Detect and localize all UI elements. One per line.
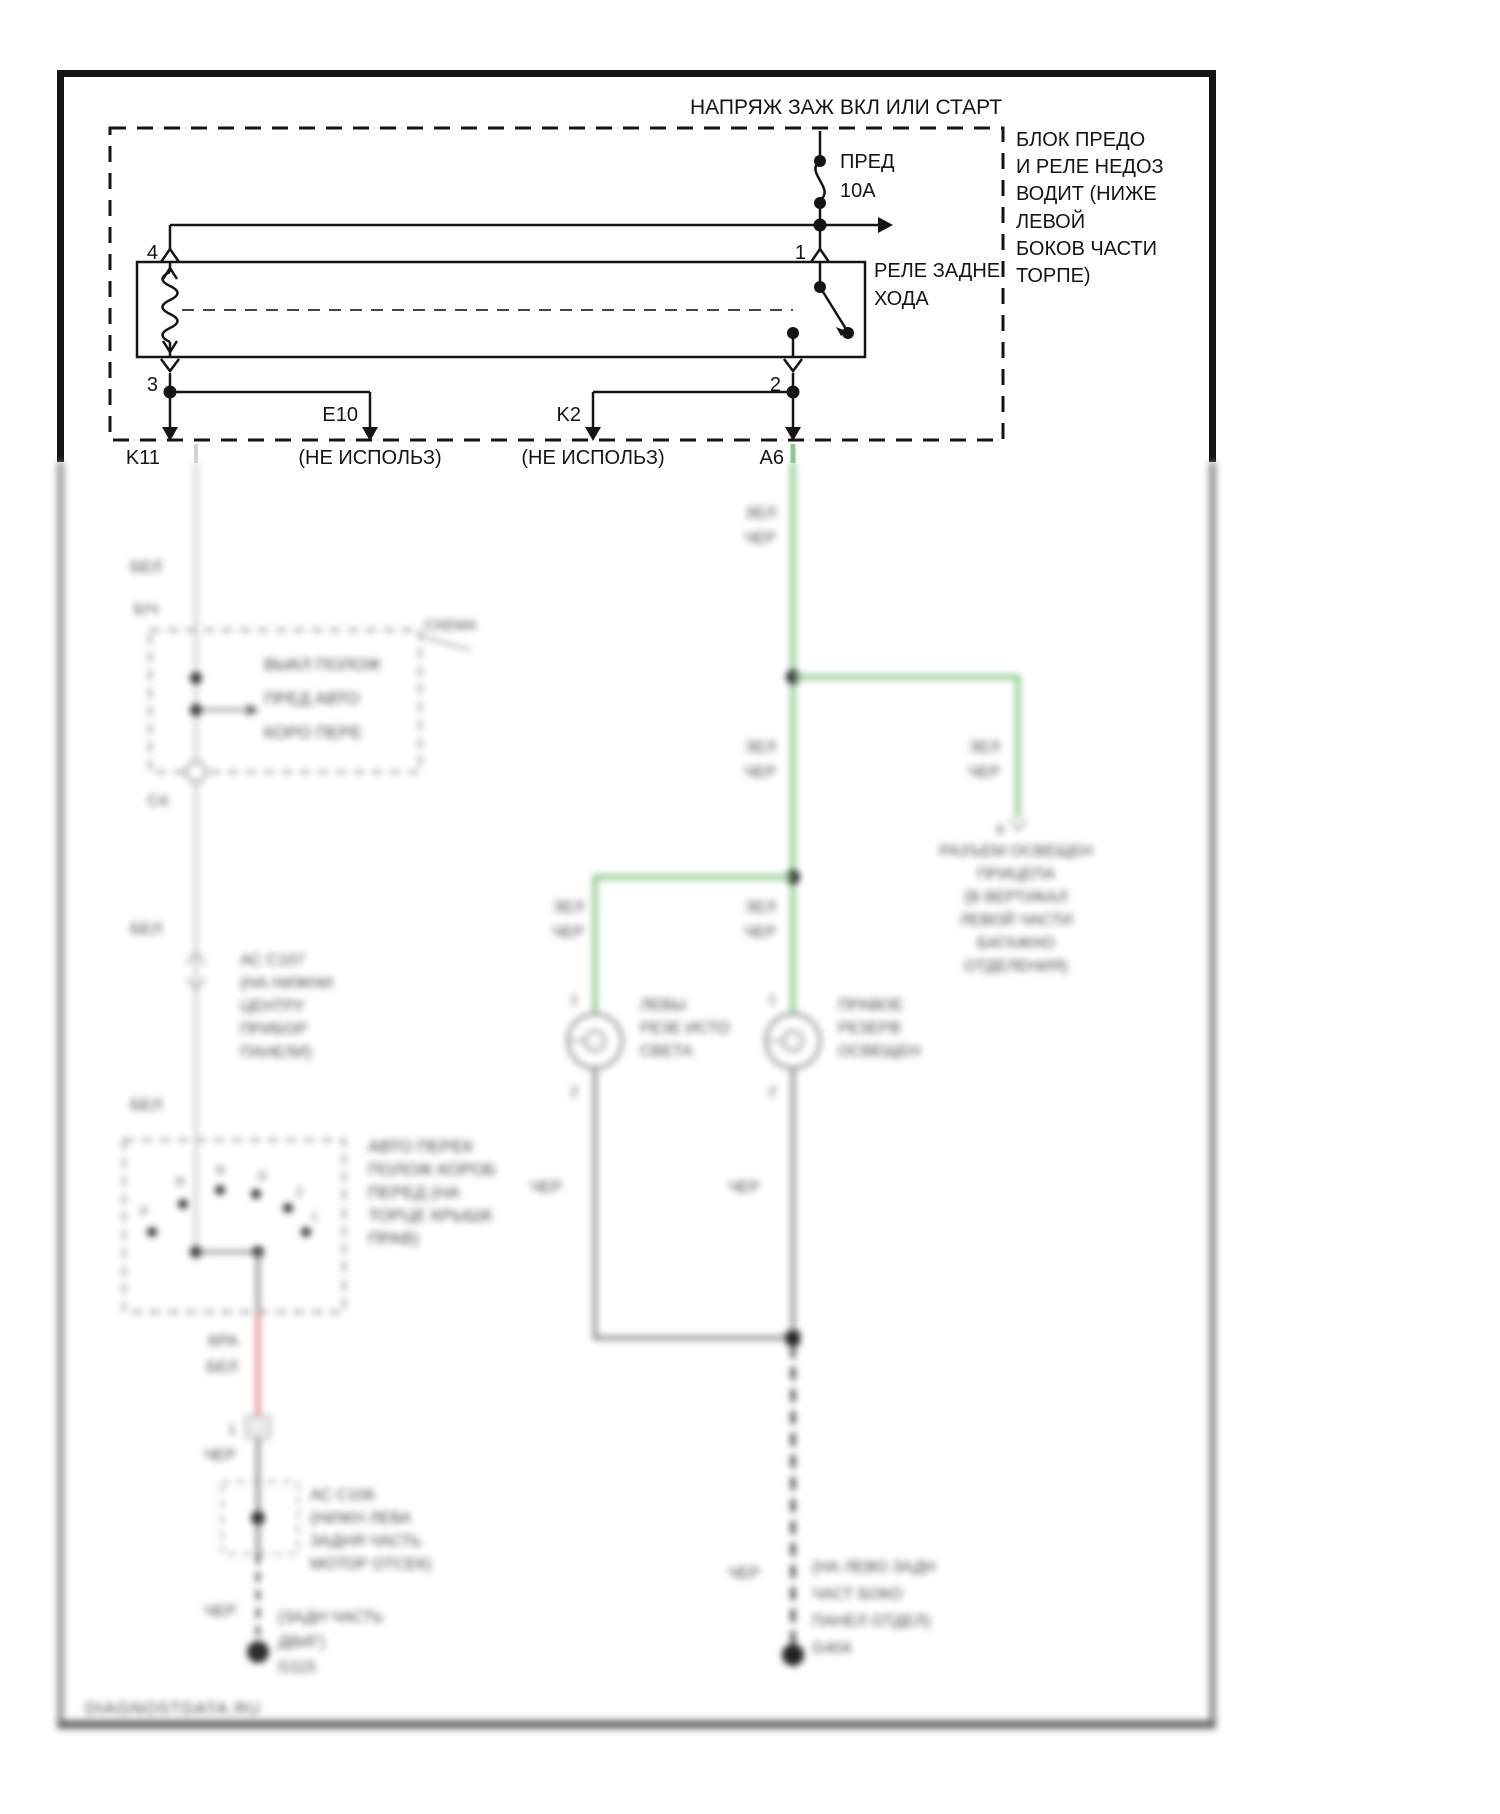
wire-color-label: ЗЕЛ	[745, 899, 776, 916]
trailer-note: ПРИЦЕПА	[977, 866, 1056, 883]
wire-color-label: ЧЕР	[728, 1179, 760, 1196]
e10-not-used-label: (НЕ ИСПОЛЬЗ)	[298, 447, 441, 469]
right-backup-lamp: 1 ПРАВОЕ РЕЗЕРВ ОСВЕЩЕН 2	[766, 991, 921, 1099]
coil-arrow-up-icon	[163, 268, 177, 279]
lamp-ground-wire-left	[595, 1068, 786, 1338]
relay-pin3-label: 3	[147, 374, 158, 396]
wire-color-label: БЕЛ	[130, 921, 162, 938]
contact-dot	[190, 672, 202, 684]
fuse-rating: 10А	[840, 180, 876, 202]
range-switch-rotary-contacts: Р R N D 2 L	[140, 1140, 319, 1312]
gear-position-label: R	[176, 1175, 185, 1189]
range-switch-note: ПРАВ)	[368, 1229, 419, 1248]
wire-color-label: ЗЕЛ	[745, 739, 776, 756]
arrow-right-icon	[247, 704, 259, 716]
connector-ring-icon	[186, 762, 206, 782]
gear-position-label: L	[312, 1209, 319, 1223]
ground-note: G404	[812, 1640, 851, 1657]
junction-dot	[251, 1511, 265, 1525]
wire-color-label: ЗЕЛ	[969, 739, 1000, 756]
range-switch-note: ПЕРЕД (НА	[368, 1183, 460, 1202]
note-line: БЛОК ПРЕДО	[1016, 129, 1145, 151]
relay-pin4-label: 4	[147, 242, 158, 264]
trailer-note: (В ВЕРТИКАЛ	[964, 889, 1068, 906]
wire-color-label: БЕЛ	[130, 1097, 162, 1114]
watermark: DIAGNOSTDATA.RU	[85, 1699, 261, 1718]
wire-color-label: ЗЕЛ	[553, 899, 584, 916]
gear-position-label: N	[216, 1163, 225, 1177]
frame-border-bottom	[57, 1720, 1216, 1729]
contact-dot	[283, 1203, 293, 1213]
blurred-lower-diagram: БЕЛ Б/Ч СХЕМА ВЫКЛ ПОЛОЖ ПРЕД АВТО КОРО …	[57, 462, 1216, 1729]
relay-pin1-label: 1	[795, 242, 806, 264]
trailer-note: БАГАЖНО	[977, 935, 1055, 952]
range-switch-note: АВТО ПЕРЕК	[368, 1137, 473, 1156]
frame-border-left	[57, 70, 64, 462]
trailer-note: ОТДЕЛЕНИЯ)	[964, 958, 1068, 975]
range-switch-dashed-box	[124, 1140, 344, 1312]
exit-k2-label: K2	[557, 404, 581, 426]
trailer-pin-label: 6	[996, 821, 1004, 837]
lamp-label: СВЕТА	[640, 1043, 693, 1060]
ground-note: ДВИГ)	[278, 1634, 325, 1651]
ground-point-icon	[247, 1641, 269, 1663]
note-line: ТОРПЕ)	[1016, 265, 1091, 287]
c106-note: АС С106	[310, 1487, 375, 1504]
ground-note: (НА ЛЕВО ЗАДН	[812, 1559, 935, 1576]
exit-e10-label: E10	[322, 404, 358, 426]
frame-border-left-lower	[57, 462, 64, 1724]
pin1-chevron-icon	[811, 249, 829, 262]
inline-connector-box	[246, 1416, 270, 1438]
connector-c4-label: С4	[148, 793, 169, 810]
note-line: БОКОВ ЧАСТИ	[1016, 238, 1157, 260]
c106-note: ЗАДНЯ ЧАСТЬ	[310, 1533, 422, 1550]
right-branch-a6: ЗЕЛ ЧЕР ЗЕЛ ЧЕР 6 РАЗЪЕМ ОСВЕЩЕН ПРИЦЕПА…	[530, 462, 1093, 1666]
wire-color-label: КРА	[208, 1333, 238, 1350]
pin4-chevron-icon	[161, 249, 179, 262]
contact-dot	[215, 1185, 225, 1195]
contact-dot	[178, 1199, 188, 1209]
inhibitor-text: ВЫКЛ ПОЛОЖ	[264, 655, 381, 674]
lamp-pin-label: 1	[570, 991, 578, 1007]
green-wire-left-lamp-branch	[595, 877, 793, 1014]
c107-note: ПАНЕЛИ)	[240, 1044, 312, 1061]
gear-position-label: D	[258, 1169, 267, 1183]
arrow-right-icon	[878, 217, 893, 233]
lamp-filament-icon	[585, 1031, 605, 1051]
lamp-label: ОСВЕЩЕН	[838, 1043, 921, 1060]
c107-note: ПРИБОР	[240, 1021, 307, 1038]
contact-dot	[301, 1227, 311, 1237]
relay-switch-contacts	[787, 262, 854, 357]
c107-note: (НА НИЖНИ	[240, 975, 333, 992]
relay-reverse: 4 1 РЕЛЕ ЗАДНЕ ХОДА	[137, 242, 1000, 357]
ground-note: (ЗАДН ЧАСТЬ	[278, 1609, 383, 1626]
connector-exit-labels: K11 (НЕ ИСПОЛЬЗ) (НЕ ИСПОЛЬЗ) A6	[126, 444, 793, 469]
fuse-relay-block-note: БЛОК ПРЕДО И РЕЛЕ НЕДОЗ ВОДИТ (НИЖЕ ЛЕВО…	[1016, 129, 1164, 287]
frame-border-right-lower	[1209, 462, 1216, 1724]
trailer-note: ЛЕВОЙ ЧАСТИ	[960, 910, 1073, 929]
wire-color-label: ЧЕР	[728, 1565, 760, 1582]
c107-note: ЦЕНТРУ	[240, 998, 305, 1015]
contact-dot	[251, 1189, 261, 1199]
ground-note: G115	[278, 1659, 316, 1676]
wire-color-label: ЧЕР	[204, 1447, 236, 1464]
wire-color-label: БЕЛ	[206, 1359, 238, 1376]
fuse-name: ПРЕД	[840, 151, 895, 173]
trailer-note: РАЗЪЕМ ОСВЕЩЕН	[939, 843, 1092, 860]
range-switch-note: ТОРЦЕ КРЫШК	[368, 1206, 493, 1225]
relay-name: ХОДА	[874, 288, 929, 310]
left-backup-lamp: 1 ЛЕВЫ РЕЗЕ ИСТО СВЕТА 2	[568, 991, 730, 1099]
wire-color-label: Б/Ч	[134, 601, 158, 618]
lamp-pin-label: 2	[570, 1083, 578, 1099]
circuit-power-title: НАПРЯЖ ЗАЖ ВКЛ ИЛИ СТАРТ	[690, 96, 1002, 119]
wiring-diagram-page: НАПРЯЖ ЗАЖ ВКЛ ИЛИ СТАРТ БЛОК ПРЕДО И РЕ…	[0, 0, 1500, 1814]
left-branch-k11: БЕЛ Б/Ч СХЕМА ВЫКЛ ПОЛОЖ ПРЕД АВТО КОРО …	[124, 462, 496, 1676]
contact-dot	[842, 327, 854, 339]
relay-coil	[163, 262, 178, 357]
note-line: ЛЕВОЙ	[1016, 209, 1085, 233]
wire-color-label: ЧЕР	[204, 1603, 236, 1620]
lamp-pin-label: 1	[768, 991, 776, 1007]
pin3-chevron-icon	[161, 359, 179, 371]
frame-border-right	[1209, 70, 1216, 462]
leader-line	[420, 636, 470, 650]
pin-chevron-icon	[1010, 820, 1026, 830]
c106-note: МОТОР ОТСЕК)	[310, 1556, 431, 1573]
inhibitor-text: КОРО ПЕРЕ	[264, 723, 362, 742]
ground-point-icon	[782, 1644, 804, 1666]
gear-position-label: 2	[296, 1185, 303, 1199]
relay-name: РЕЛЕ ЗАДНЕ	[874, 260, 1000, 282]
inhibitor-text: ПРЕД АВТО	[264, 689, 360, 708]
wire-color-label: ЧЕР	[744, 530, 776, 547]
power-bus-wire	[170, 217, 893, 250]
wire-color-label: ЧЕР	[968, 764, 1000, 781]
wire-color-label: ЗЕЛ	[745, 505, 776, 522]
c107-note: АС С107	[240, 952, 305, 969]
range-switch-note: ПОЛОЖ КОРОБ	[368, 1160, 496, 1179]
k2-not-used-label: (НЕ ИСПОЛЬЗ)	[521, 447, 664, 469]
c106-note: (НИЖН ЛЕВА	[310, 1510, 411, 1527]
ground-note: ПАНЕЛ ОТДЕЛ)	[812, 1613, 930, 1630]
wire-color-label: ЧЕР	[744, 924, 776, 941]
connector-pin-label: 1	[228, 1421, 236, 1437]
note-line: И РЕЛЕ НЕДОЗ	[1016, 156, 1164, 178]
lamp-filament-icon	[783, 1031, 803, 1051]
pin2-chevron-icon	[784, 359, 802, 371]
fuse-10a: ПРЕД 10А	[814, 131, 895, 225]
inhibitor-ext-label: СХЕМА	[424, 617, 477, 634]
wire-color-label: БЕЛ	[130, 559, 162, 576]
wire-color-label: ЧЕР	[530, 1179, 562, 1196]
ground-note: ЧАСТ БОКО	[812, 1586, 903, 1603]
wire-color-label: ЧЕР	[744, 764, 776, 781]
note-line: ВОДИТ (НИЖЕ	[1016, 183, 1157, 205]
junction-dot	[786, 1331, 800, 1345]
contact-dot	[147, 1227, 157, 1237]
connector-k11-label: K11	[126, 447, 160, 469]
lamp-label: ПРАВОЕ	[838, 997, 903, 1014]
wire-color-label: ЧЕР	[552, 924, 584, 941]
lamp-label: ЛЕВЫ	[640, 997, 686, 1014]
frame-border-top	[57, 70, 1216, 77]
lamp-label: РЕЗЕ ИСТО	[640, 1020, 730, 1037]
lamp-pin-label: 2	[768, 1083, 776, 1099]
relay-output-wires: 3 2 E10 K2	[147, 359, 802, 441]
lamp-label: РЕЗЕРВ	[838, 1020, 901, 1037]
connector-a6-label: A6	[760, 447, 784, 469]
gear-position-label: Р	[140, 1205, 148, 1219]
